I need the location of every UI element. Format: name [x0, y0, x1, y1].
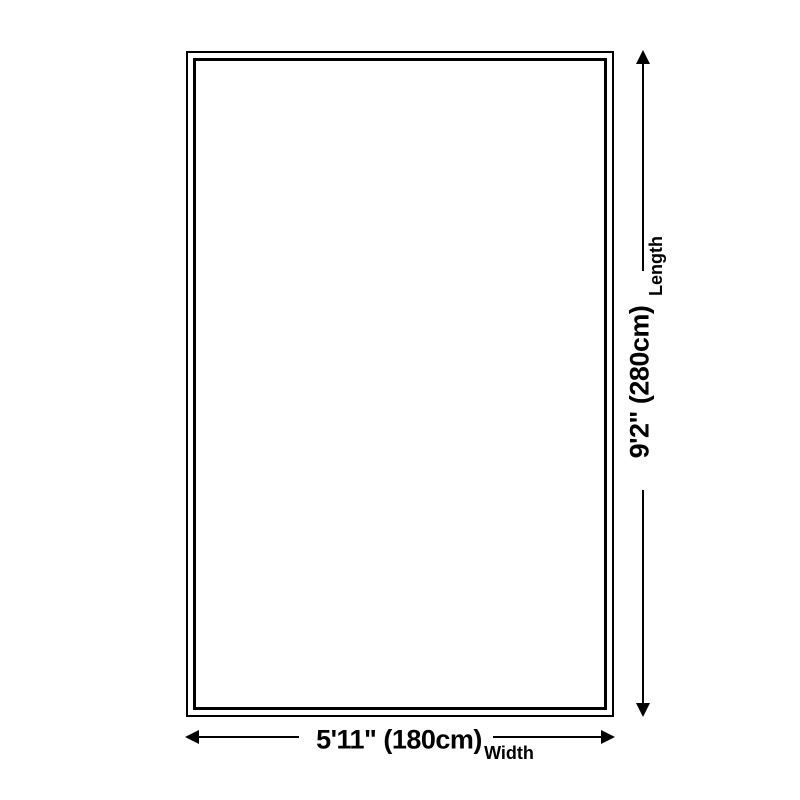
length-arrow-down-icon — [636, 703, 650, 717]
length-dimension-value: 9'2" (280cm) — [627, 306, 654, 459]
width-dimension-line-left — [195, 736, 299, 738]
width-dimension-line-right — [493, 736, 604, 738]
length-dimension-label: Length — [647, 236, 665, 296]
width-dimension-label: Width — [484, 744, 534, 762]
length-dimension-line-lower — [642, 490, 644, 707]
rug-size-diagram: 9'2" (280cm) Length 5'11" (180cm) Width — [0, 0, 800, 800]
width-dimension-value: 5'11" (180cm) — [316, 727, 482, 754]
length-dimension-line-upper — [642, 60, 644, 271]
rug-outline-outer — [186, 51, 614, 717]
rug-outline-inner — [193, 58, 607, 710]
width-arrow-right-icon — [601, 730, 615, 744]
